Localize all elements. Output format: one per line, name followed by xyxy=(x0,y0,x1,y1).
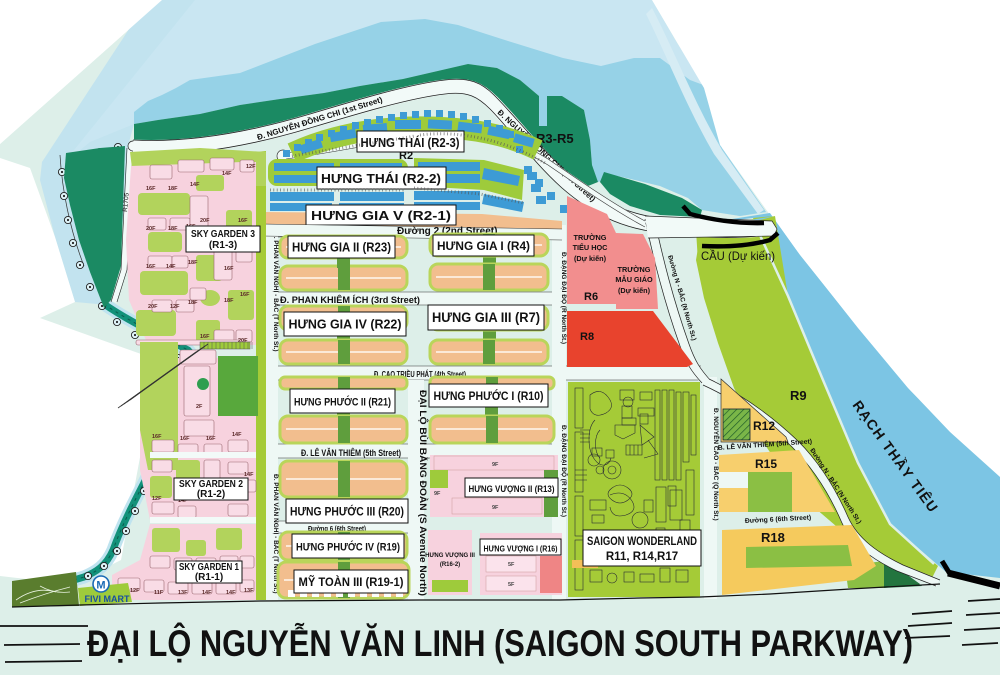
svg-text:16F: 16F xyxy=(238,218,248,224)
svg-text:2F: 2F xyxy=(196,404,203,410)
svg-text:13F: 13F xyxy=(244,588,254,594)
svg-text:12F: 12F xyxy=(170,304,180,310)
svg-text:HƯNG VƯỢNG III: HƯNG VƯỢNG III xyxy=(425,553,475,559)
svg-text:M: M xyxy=(96,580,105,592)
svg-text:HƯNG PHƯỚC I (R10): HƯNG PHƯỚC I (R10) xyxy=(434,388,544,403)
svg-text:16F: 16F xyxy=(180,436,190,442)
svg-text:CẦU (Dự kiến): CẦU (Dự kiến) xyxy=(701,248,775,263)
svg-text:HƯNG GIA IV (R22): HƯNG GIA IV (R22) xyxy=(289,318,402,332)
svg-text:R8: R8 xyxy=(580,331,594,343)
svg-text:HƯNG GIA II (R23): HƯNG GIA II (R23) xyxy=(292,241,391,255)
svg-text:14F: 14F xyxy=(244,472,254,478)
svg-text:16F: 16F xyxy=(240,292,250,298)
svg-text:(Dự kiến): (Dự kiến) xyxy=(618,286,651,295)
svg-text:R18: R18 xyxy=(761,530,785,545)
svg-text:20F: 20F xyxy=(146,226,156,232)
svg-text:18F: 18F xyxy=(188,260,198,266)
svg-text:9F: 9F xyxy=(492,505,499,511)
svg-text:HƯNG VƯỢNG I (R16): HƯNG VƯỢNG I (R16) xyxy=(484,544,558,554)
svg-text:18F: 18F xyxy=(168,226,178,232)
svg-text:12F: 12F xyxy=(246,164,256,170)
svg-text:R11, R14,R17: R11, R14,R17 xyxy=(606,551,678,563)
svg-text:Đ. ĐẶNG ĐẠI ĐỘ (R North St.): Đ. ĐẶNG ĐẠI ĐỘ (R North St.) xyxy=(560,425,569,517)
svg-text:HƯNG GIA V (R2-1): HƯNG GIA V (R2-1) xyxy=(311,209,451,223)
svg-text:HƯNG PHƯỚC IV (R19): HƯNG PHƯỚC IV (R19) xyxy=(296,541,400,554)
svg-text:HƯNG PHƯỚC II (R21): HƯNG PHƯỚC II (R21) xyxy=(294,396,391,409)
svg-text:16F: 16F xyxy=(200,334,210,340)
svg-text:(Dự kiến): (Dự kiến) xyxy=(574,254,607,263)
svg-text:18F: 18F xyxy=(224,298,234,304)
svg-text:MẪU GIÁO: MẪU GIÁO xyxy=(615,275,653,284)
svg-text:TRƯỜNG: TRƯỜNG xyxy=(618,265,651,274)
svg-text:HƯNG THÁI (R2-2): HƯNG THÁI (R2-2) xyxy=(321,171,441,186)
svg-text:ĐẠI LỘ BÙI BẰNG ĐOÀN (S Avenue: ĐẠI LỘ BÙI BẰNG ĐOÀN (S Avenue North) xyxy=(417,390,429,596)
svg-text:MỸ TOÀN III (R19-1): MỸ TOÀN III (R19-1) xyxy=(299,576,404,589)
svg-text:14F: 14F xyxy=(166,264,176,270)
svg-text:HƯNG GIA I (R4): HƯNG GIA I (R4) xyxy=(437,239,530,253)
svg-text:HƯNG GIA III (R7): HƯNG GIA III (R7) xyxy=(432,310,540,325)
svg-text:FIVI MART: FIVI MART xyxy=(85,594,130,604)
svg-text:14F: 14F xyxy=(232,432,242,438)
svg-text:14F: 14F xyxy=(202,590,212,596)
svg-text:HƯNG VƯỢNG II (R13): HƯNG VƯỢNG II (R13) xyxy=(469,484,555,495)
svg-text:5F: 5F xyxy=(508,582,515,588)
svg-text:TRƯỜNG: TRƯỜNG xyxy=(574,233,607,242)
svg-text:20F: 20F xyxy=(200,218,210,224)
svg-text:Đ. PHAN KHIÊM ÍCH (3rd Street): Đ. PHAN KHIÊM ÍCH (3rd Street) xyxy=(280,294,420,306)
svg-text:18F: 18F xyxy=(188,300,198,306)
svg-text:12F: 12F xyxy=(130,588,140,594)
svg-text:(R1-1): (R1-1) xyxy=(195,572,223,583)
svg-text:9F: 9F xyxy=(492,462,499,468)
svg-text:R6: R6 xyxy=(584,291,598,303)
svg-text:12F: 12F xyxy=(152,496,162,502)
svg-text:(R1-2): (R1-2) xyxy=(197,489,225,500)
svg-text:11F: 11F xyxy=(154,590,164,596)
svg-text:SKY GARDEN 3: SKY GARDEN 3 xyxy=(191,229,255,240)
svg-text:Đ. LÊ VĂN THIÊM (5th Street): Đ. LÊ VĂN THIÊM (5th Street) xyxy=(301,447,401,458)
svg-text:R12: R12 xyxy=(753,419,775,433)
svg-text:ĐẠI LỘ NGUYỄN VĂN LINH (SAIGON: ĐẠI LỘ NGUYỄN VĂN LINH (SAIGON SOUTH PAR… xyxy=(87,622,913,664)
svg-text:16F: 16F xyxy=(146,264,156,270)
svg-text:SAIGON WONDERLAND: SAIGON WONDERLAND xyxy=(587,536,697,548)
svg-text:16F: 16F xyxy=(224,266,234,272)
svg-text:16F: 16F xyxy=(206,436,216,442)
svg-text:14F: 14F xyxy=(190,182,200,188)
svg-text:18F: 18F xyxy=(168,186,178,192)
svg-text:TIỂU HỌC: TIỂU HỌC xyxy=(573,243,609,252)
svg-text:(R1-3): (R1-3) xyxy=(209,240,237,251)
svg-text:HƯNG PHƯỚC III (R20): HƯNG PHƯỚC III (R20) xyxy=(290,506,404,519)
svg-text:16F: 16F xyxy=(146,186,156,192)
svg-text:R15: R15 xyxy=(755,457,777,471)
svg-text:20F: 20F xyxy=(148,304,158,310)
svg-text:(R16-2): (R16-2) xyxy=(440,562,460,568)
svg-text:R9: R9 xyxy=(790,388,807,403)
svg-text:14F: 14F xyxy=(222,171,232,177)
svg-text:5F: 5F xyxy=(508,562,515,568)
svg-text:9F: 9F xyxy=(434,491,441,497)
svg-text:14F: 14F xyxy=(226,590,236,596)
svg-text:16F: 16F xyxy=(152,434,162,440)
svg-text:13F: 13F xyxy=(178,590,188,596)
